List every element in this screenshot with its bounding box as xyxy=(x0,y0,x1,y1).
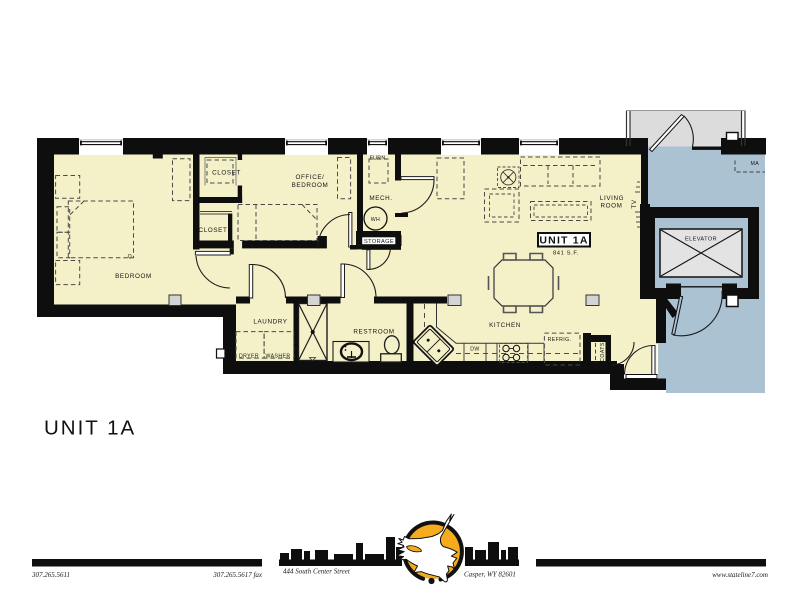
svg-text:WH: WH xyxy=(371,217,380,223)
svg-text:TV: TV xyxy=(631,199,638,208)
svg-text:ELEVATOR: ELEVATOR xyxy=(685,237,717,243)
svg-text:FURN.: FURN. xyxy=(370,156,388,162)
svg-text:ROOM: ROOM xyxy=(601,203,623,210)
svg-text:www.stateline7.com: www.stateline7.com xyxy=(712,571,768,579)
svg-text:BEDROOM: BEDROOM xyxy=(292,182,329,189)
svg-text:OFFICE/: OFFICE/ xyxy=(295,174,324,181)
svg-text:CLOSET: CLOSET xyxy=(212,170,241,177)
svg-text:307.265.5617 fax: 307.265.5617 fax xyxy=(212,571,263,579)
svg-text:UNIT 1A: UNIT 1A xyxy=(44,417,136,440)
svg-text:COATS: COATS xyxy=(600,342,606,362)
svg-text:REFRIG.: REFRIG. xyxy=(548,337,572,343)
svg-text:307.265.5611: 307.265.5611 xyxy=(31,571,70,579)
svg-text:DW: DW xyxy=(470,347,479,353)
svg-text:Casper, WY 82601: Casper, WY 82601 xyxy=(464,571,516,579)
svg-text:UNIT 1A: UNIT 1A xyxy=(539,235,588,247)
svg-text:Q: Q xyxy=(128,254,132,260)
svg-text:CLOSET: CLOSET xyxy=(199,227,228,234)
svg-text:841 S.F.: 841 S.F. xyxy=(553,251,579,257)
svg-text:444 South Center Street: 444 South Center Street xyxy=(283,568,351,576)
svg-text:DRYER: DRYER xyxy=(239,354,259,360)
svg-text:RESTROOM: RESTROOM xyxy=(353,329,394,336)
svg-text:MA: MA xyxy=(751,161,760,167)
svg-text:STORAGE: STORAGE xyxy=(364,239,394,245)
svg-text:LAUNDRY: LAUNDRY xyxy=(253,319,287,326)
svg-text:KITCHEN: KITCHEN xyxy=(489,322,521,329)
svg-text:MECH.: MECH. xyxy=(369,195,392,202)
svg-text:WASHER: WASHER xyxy=(266,354,291,360)
svg-text:BEDROOM: BEDROOM xyxy=(115,273,152,280)
svg-text:LIVING: LIVING xyxy=(600,195,624,202)
